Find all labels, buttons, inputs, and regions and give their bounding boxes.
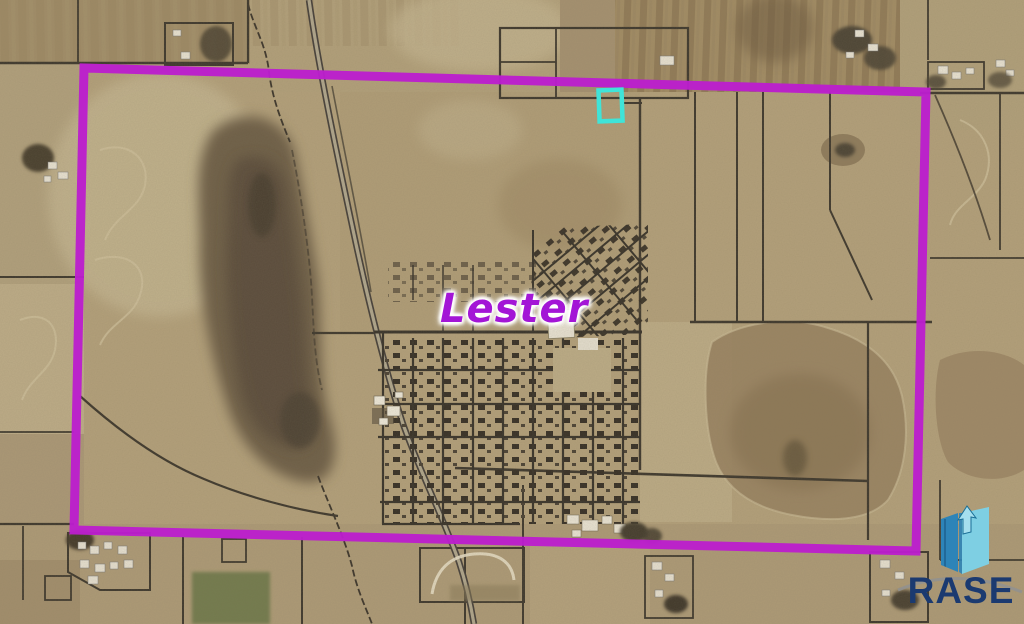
- town-label: Lester: [440, 286, 588, 332]
- rase-logo: RASE: [896, 498, 1024, 624]
- rase-logo-text: RASE: [902, 570, 1020, 612]
- parcel-marker-overlay: [598, 90, 622, 122]
- map-viewport: Lester RASE: [0, 0, 1024, 624]
- rase-book-arrow-icon: [936, 504, 992, 574]
